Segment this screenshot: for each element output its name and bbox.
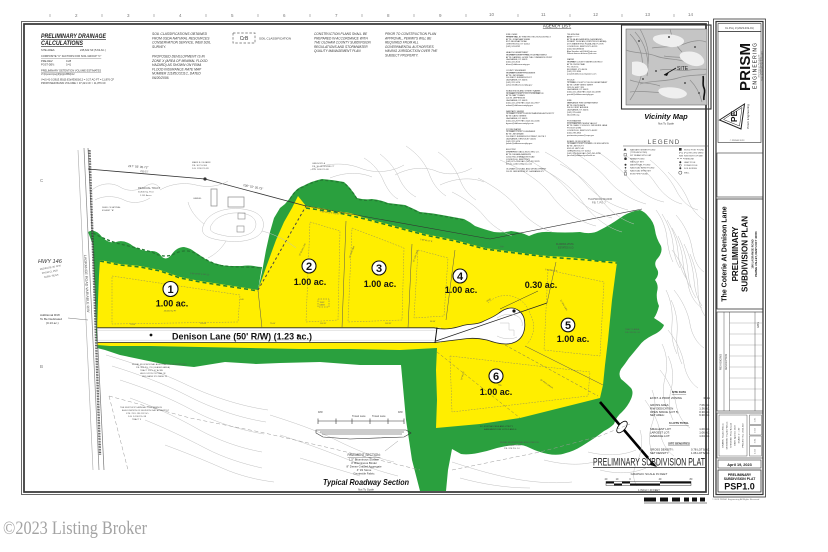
svg-text:102.51': 102.51' [320, 323, 327, 325]
svg-text:P.B. 30-19 DEVINE CT: P.B. 30-19 DEVINE CT [312, 166, 335, 168]
svg-text:© 2023 PRISM. Engineering All: © 2023 PRISM. Engineering All Rights Res… [712, 498, 760, 501]
svg-text:50' JOINT ACCESS AND UTILITY: 50' JOINT ACCESS AND UTILITY [480, 425, 514, 428]
svg-text:245,622 SF (5.63 AC.): 245,622 SF (5.63 AC.) [80, 48, 106, 52]
svg-text:EXHIBIT "A": EXHIBIT "A" [102, 209, 114, 212]
svg-text:(TYPE AS NOTED): (TYPE AS NOTED) [630, 151, 648, 154]
svg-text:DATE: April 19, 2023: DATE: April 19, 2023 [734, 425, 737, 446]
svg-text:WELL: WELL [684, 173, 690, 175]
svg-text:3: 3 [376, 263, 382, 275]
svg-text:SUBJECT PROPERTY.: SUBJECT PROPERTY. [385, 54, 419, 58]
svg-text:D.B. 1430 PG 88: D.B. 1430 PG 88 [312, 169, 329, 171]
svg-text:TRACT 2073, 47 ACRE: TRACT 2073, 47 ACRE [140, 369, 163, 372]
svg-text:REVISIONS: REVISIONS [719, 354, 723, 370]
svg-text:R/W: R/W [679, 156, 683, 158]
svg-text:IRON PIPE FOUND: IRON PIPE FOUND [630, 174, 648, 176]
svg-text:R/W: R/W [318, 411, 323, 414]
svg-text:April 19, 2023: April 19, 2023 [727, 463, 751, 467]
svg-text:259.57': 259.57' [140, 169, 149, 174]
svg-text:Not To Scale: Not To Scale [358, 488, 374, 492]
svg-text:WOOD POST FOUND: WOOD POST FOUND [684, 150, 705, 152]
svg-text:V=(0.41-0.28)(3.85)(5.63)(4356: V=(0.41-0.28)(3.85)(5.63)(43560)/12 = 0.… [41, 78, 114, 82]
svg-text:SCALE: 1" = 40': SCALE: 1" = 40' [738, 427, 741, 443]
svg-text:ASSOCIATION OF SEVENTH DAY ADV: ASSOCIATION OF SEVENTH DAY ADVENTIST [122, 409, 170, 412]
svg-text:PSP1.0: PSP1.0 [724, 482, 755, 492]
svg-text:SITE: SITE [677, 66, 689, 72]
svg-text:5/8" REBAR WITH CAP: 5/8" REBAR WITH CAP [630, 154, 652, 157]
svg-text:NET AREA:: NET AREA: [650, 413, 665, 417]
svg-text:6 LOTS TOTAL: 6 LOTS TOTAL [669, 421, 689, 425]
svg-text:TRACT 3: TRACT 3 [132, 418, 142, 421]
svg-text:(PC): (PC) [679, 153, 683, 155]
svg-text:Vicinity Map: Vicinity Map [644, 112, 688, 121]
svg-text:P.B. 7, PG. 7: P.B. 7, PG. 7 [592, 201, 606, 204]
svg-text:QUALITY MANAGEMENT PLAN: QUALITY MANAGEMENT PLAN [314, 49, 361, 53]
svg-text:kbate@lfr.org: kbate@lfr.org [567, 113, 579, 116]
svg-text:56.94': 56.94' [430, 321, 436, 323]
svg-text:WAG CUT SET: WAG CUT SET [630, 161, 645, 164]
svg-text:jurban@oldhamcountyky.gov: jurban@oldhamcountyky.gov [505, 142, 533, 145]
svg-text:PROJECT No: 2023-019: PROJECT No: 2023-019 [743, 423, 745, 448]
svg-text:SITE AREA:: SITE AREA: [41, 48, 55, 52]
svg-text:PRELIMINARY SUBDIVISION PLAT: PRELIMINARY SUBDIVISION PLAT [593, 457, 705, 469]
svg-text:RURAL EDUCATIONAL ASSOCIATION: RURAL EDUCATIONAL ASSOCIATION OF KENTUCK… [132, 363, 187, 366]
svg-text:1.00 ac.: 1.00 ac. [156, 299, 189, 309]
svg-text:GREGORY A: GREGORY A [312, 162, 326, 165]
svg-text:PAVEMENT SECTION:: PAVEMENT SECTION: [348, 453, 381, 457]
svg-text:PRELIMINARY DETENTION VOLUME E: PRELIMINARY DETENTION VOLUME ESTIMATES [41, 69, 101, 73]
svg-text:SOIL BORING: SOIL BORING [684, 168, 697, 170]
svg-text:POWER POLE: POWER POLE [684, 165, 698, 167]
svg-text:43,560 SQ FT: 43,560 SQ FT [164, 311, 177, 313]
svg-text:12: 12 [593, 12, 599, 17]
svg-text:jim.stott@oldham.kyschools.us: jim.stott@oldham.kyschools.us [566, 154, 595, 157]
svg-text:AGENCY LIST:: AGENCY LIST: [543, 24, 571, 29]
svg-text:(PC) RECORD DEED: (PC) RECORD DEED [684, 153, 704, 155]
svg-text:ENGINEERING: ENGINEERING [753, 43, 759, 89]
svg-text:GRAVEL: GRAVEL [193, 197, 202, 200]
svg-text:13: 13 [645, 12, 651, 17]
svg-text:1.00 ac.: 1.00 ac. [445, 285, 478, 295]
svg-text:1.04 AC.: 1.04 AC. [699, 434, 710, 438]
svg-text:SURVEY.: SURVEY. [152, 45, 166, 49]
svg-text:RESIDUAL TRACT: RESIDUAL TRACT [138, 186, 161, 190]
svg-text:30,846 Sq. Feet: 30,846 Sq. Feet [138, 191, 154, 194]
svg-text:THE KENTUCKY ANNUAL CONFERENCE: THE KENTUCKY ANNUAL CONFERENCE [120, 406, 163, 409]
svg-text:MARK B. DEJARN: MARK B. DEJARN [192, 161, 211, 164]
svg-text:1 INCH = 40 FEET: 1 INCH = 40 FEET [638, 488, 660, 492]
svg-text:RED BANK 976 PAGE 14: RED BANK 976 PAGE 14 [142, 375, 168, 378]
svg-text:R-1A: R-1A [704, 396, 711, 400]
svg-text:RAILROAD SPIKE FOUND: RAILROAD SPIKE FOUND [630, 167, 655, 170]
svg-text:©2023 Listing Broker: ©2023 Listing Broker [3, 518, 148, 539]
svg-text:OF KENTUCKY: OF KENTUCKY [506, 445, 522, 447]
svg-text:LEGEND: LEGEND [648, 139, 681, 146]
svg-text:RURAL EDUCATIONAL ASSOCIATION: RURAL EDUCATIONAL ASSOCIATION [500, 441, 539, 444]
svg-text:Geotextile Fabric: Geotextile Fabric [353, 472, 375, 476]
svg-text:PROPOSED BASIN VOLUME = 37,221: PROPOSED BASIN VOLUME = 37,221 CF > 11,8… [41, 81, 106, 85]
svg-text:CHECKED: Perry Bovard: CHECKED: Perry Bovard [730, 422, 733, 447]
svg-text:Not To Scale: Not To Scale [658, 122, 674, 126]
svg-text:B: B [40, 364, 43, 369]
svg-text:1.00 ac.: 1.00 ac. [480, 387, 513, 397]
svg-text:RAILROAD SPIKE SET: RAILROAD SPIKE SET [630, 170, 652, 173]
svg-text:14: 14 [688, 12, 694, 17]
svg-text:100 W. JEFFERSON ST. LAGRANGE: 100 W. JEFFERSON ST. LAGRANGE KY [506, 170, 545, 173]
svg-text:DESCRIPTION: DESCRIPTION [725, 354, 728, 371]
svg-text:1.00 ac.: 1.00 ac. [557, 334, 590, 344]
svg-text:PE: PE [729, 111, 739, 123]
svg-text:CALCULATIONS: CALCULATIONS [41, 40, 84, 47]
svg-text:SOIL CLASSIFICATION: SOIL CLASSIFICATION [259, 37, 291, 41]
svg-text:1.00 ac.: 1.00 ac. [364, 279, 397, 289]
svg-text:1.00 ac.: 1.00 ac. [294, 277, 327, 287]
svg-text:dgreen@oldhamcountyky.com: dgreen@oldhamcountyky.com [506, 122, 534, 125]
svg-text:6: 6 [493, 371, 499, 383]
svg-text:PRE-DEV:: PRE-DEV: [41, 59, 53, 63]
svg-text:KL Proj. # (2023-019-01): KL Proj. # (2023-019-01) [725, 26, 754, 30]
svg-text:PRELIMINARY: PRELIMINARY [731, 226, 740, 281]
svg-text:Denison Lane (50' R/W) (1.23 a: Denison Lane (50' R/W) (1.23 ac.) [172, 332, 312, 342]
svg-text:DESIGNED: Hayden Wilson: DESIGNED: Hayden Wilson [727, 421, 729, 449]
svg-text:0.28: 0.28 [66, 59, 72, 63]
svg-text:EASEMENT FOR LOTS 5 AND 6: EASEMENT FOR LOTS 5 AND 6 [484, 428, 517, 431]
svg-text:jurban@oldhamcountyky.gov: jurban@oldhamcountyky.gov [505, 83, 533, 86]
svg-text:Phone: (502) 451-8801 Fax: (5: Phone: (502) 451-8801 Fax: (502) 451-889… [761, 51, 763, 81]
svg-text:3 of 4: 3 of 4 [755, 439, 757, 444]
svg-text:SITE DENSITIES: SITE DENSITIES [668, 442, 690, 446]
svg-text:Travel Lane: Travel Lane [372, 414, 386, 418]
svg-text:SITE DATA: SITE DATA [672, 390, 686, 394]
svg-text:dhorn@oldhamcounty.gov: dhorn@oldhamcounty.gov [506, 63, 531, 66]
svg-text:POST-DEV:: POST-DEV: [41, 62, 55, 66]
svg-text:postmaster.pewee@usps.gov: postmaster.pewee@usps.gov [567, 134, 595, 137]
svg-text:102.51': 102.51' [385, 323, 392, 325]
svg-text:REBAR FOUND: REBAR FOUND [630, 158, 645, 161]
svg-text:R/W RIGHT OF WAY: R/W RIGHT OF WAY [684, 155, 704, 158]
svg-text:P.B. 983 PG. 720 (LEASED AREA): P.B. 983 PG. 720 (LEASED AREA) [136, 366, 170, 369]
svg-text:1: 1 [167, 284, 173, 296]
svg-text:D.B. 976 PG. 14: D.B. 976 PG. 14 [625, 332, 640, 334]
svg-text:6.30 AC.: 6.30 AC. [699, 413, 710, 417]
svg-text:4 of 4: 4 of 4 [755, 449, 757, 454]
svg-text:ESTATES U.D.: ESTATES U.D. [558, 246, 574, 249]
svg-text:4: 4 [457, 271, 464, 283]
svg-text:PRELIMINARY DRAINAGE: PRELIMINARY DRAINAGE [41, 33, 107, 40]
svg-text:mdearl@oldhamcountyky.gov: mdearl@oldhamcountyky.gov [506, 104, 534, 107]
svg-text:SUBDIVISION PLAN: SUBDIVISION PLAN [741, 216, 750, 292]
svg-text:TREELINE: TREELINE [684, 159, 694, 161]
svg-text:GRAPHIC SCALE IN FEET: GRAPHIC SCALE IN FEET [631, 472, 668, 476]
svg-text:gsmith@oldhamcountyky.gov: gsmith@oldhamcountyky.gov [567, 93, 595, 96]
svg-text:PEWEE VALLEY, KENTUCKY 40056: PEWEE VALLEY, KENTUCKY 40056 [754, 231, 758, 277]
svg-text:STE. 23 D.136 132 SO.: STE. 23 D.136 132 SO. [126, 413, 149, 415]
svg-text:The Coterie At Denison Lane: The Coterie At Denison Lane [722, 206, 729, 302]
svg-text:2 of 4: 2 of 4 [755, 428, 757, 433]
svg-text:CrB: CrB [240, 36, 249, 42]
svg-text:Robert.duncan.duncan@att.com: Robert.duncan.duncan@att.com [567, 52, 597, 55]
svg-text:TRACT 5 AREA: TRACT 5 AREA [625, 328, 640, 331]
svg-text:2: 2 [306, 261, 312, 273]
svg-text:(502) 241-8292: (502) 241-8292 [506, 46, 521, 48]
svg-text:11: 11 [541, 12, 546, 17]
svg-text:P.B. 976 PG. 14: P.B. 976 PG. 14 [504, 448, 520, 450]
svg-text:75.00': 75.00' [130, 324, 136, 326]
svg-text:R/W: R/W [398, 411, 403, 414]
svg-text:NET DENSITY:: NET DENSITY: [650, 451, 669, 455]
svg-text:rpeak@oldhamcountywater.com: rpeak@oldhamcountywater.com [567, 73, 597, 76]
svg-text:110.00': 110.00' [200, 323, 207, 325]
svg-text:1.06 LOTS/AC.: 1.06 LOTS/AC. [691, 451, 710, 455]
svg-text:MAG/PK NAIL FOUND: MAG/PK NAIL FOUND [630, 164, 651, 167]
svg-text:DRAWN: Hayden Wilson: DRAWN: Hayden Wilson [722, 423, 725, 448]
svg-text:PRISM: PRISM [737, 41, 754, 91]
svg-text:1 of 1: 1 of 1 [755, 418, 757, 423]
svg-text:BASIN: BASIN [320, 304, 326, 307]
svg-text:P.B. 30 PG 366: P.B. 30 PG 366 [192, 165, 208, 167]
svg-text:LAMP POLE: LAMP POLE [684, 161, 696, 164]
svg-text:DEED OF APPEAL: DEED OF APPEAL [102, 206, 122, 209]
svg-text:D.B. D.196 PG. 88: D.B. D.196 PG. 88 [128, 416, 147, 418]
svg-text:V=(Cpost-Cpre)(R)(A)(43560)/12: V=(Cpost-Cpre)(R)(A)(43560)/12 [41, 73, 75, 76]
svg-text:0.41: 0.41 [66, 62, 72, 66]
svg-text:© PRISM 2023: © PRISM 2023 [730, 139, 745, 142]
svg-text:COMPOSITE "C" FACTORS FOR SOIL: COMPOSITE "C" FACTORS FOR SOIL GROUP "C" [41, 54, 101, 58]
svg-text:5: 5 [565, 320, 571, 332]
svg-text:2.101 Acres: 2.101 Acres [140, 194, 152, 197]
svg-text:Prism Engineering: Prism Engineering [746, 104, 750, 129]
svg-text:(0.13 ac.): (0.13 ac.) [46, 321, 59, 325]
svg-text:10: 10 [489, 12, 495, 17]
svg-text:delana.sanders@lge-ku.com: delana.sanders@lge-ku.com [506, 163, 532, 166]
svg-text:0.30 ac.: 0.30 ac. [525, 280, 558, 290]
svg-text:75.00': 75.00' [270, 323, 276, 325]
svg-text:Travel Lane: Travel Lane [352, 414, 366, 418]
svg-text:D.B. 1236 PG 89: D.B. 1236 PG 89 [192, 168, 209, 170]
svg-text:HELD UPON 23 PLAN OF: HELD UPON 23 PLAN OF [140, 372, 166, 375]
svg-text:EXIST. & PROP. ZONING: EXIST. & PROP. ZONING [650, 396, 682, 400]
svg-text:Typical Roadway Section: Typical Roadway Section [323, 478, 409, 487]
svg-text:06/20/2006.: 06/20/2006. [152, 76, 170, 80]
svg-text:AVERAGE LOT:: AVERAGE LOT: [650, 434, 670, 438]
svg-text:DATE: DATE [757, 321, 760, 328]
